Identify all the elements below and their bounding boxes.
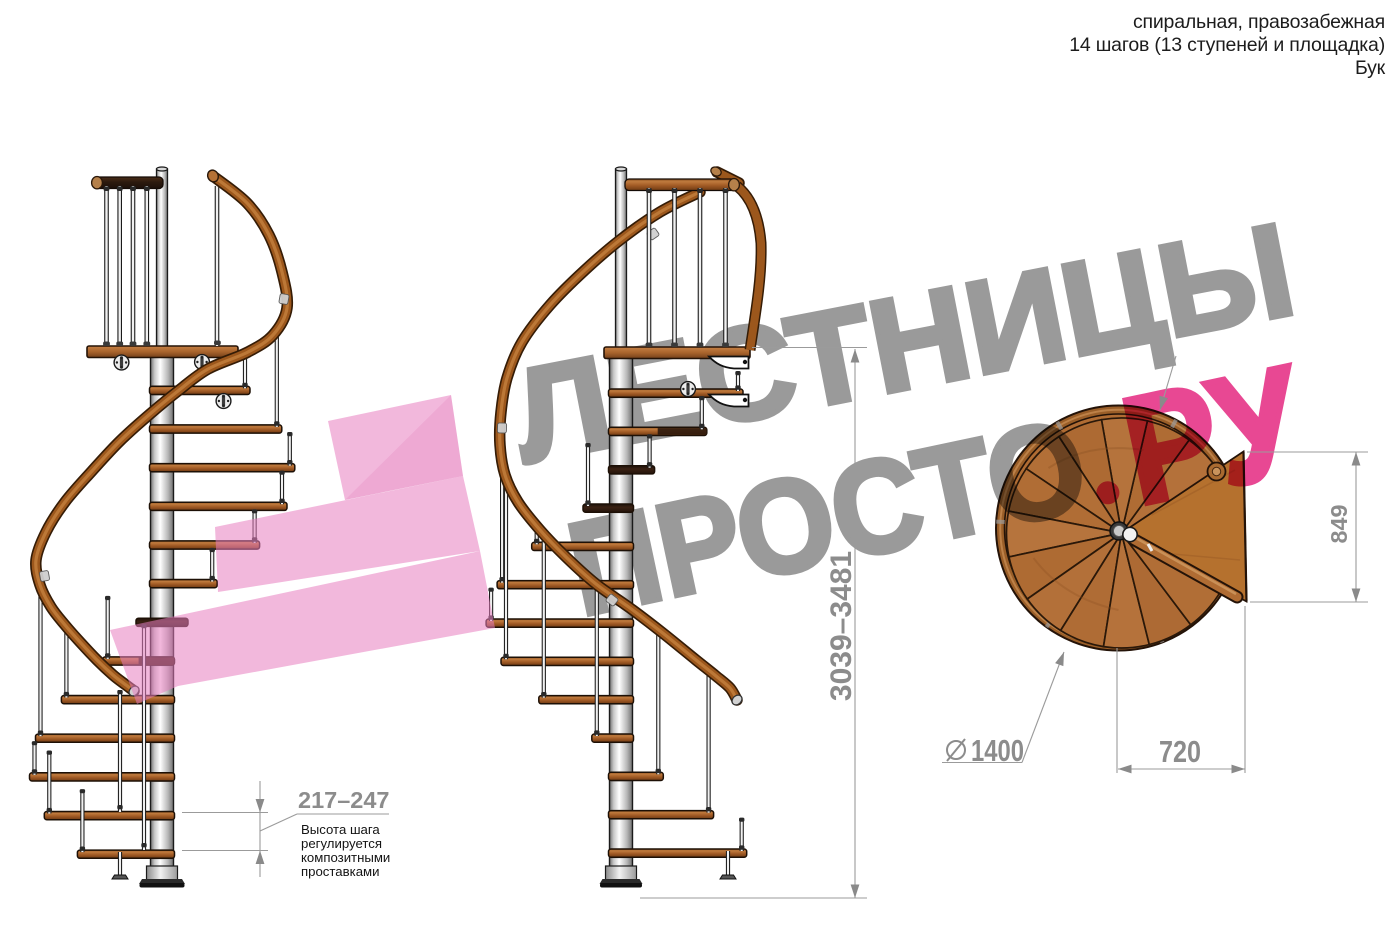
svg-text:14 шагов (13 ступеней и площад: 14 шагов (13 ступеней и площадка) (1069, 34, 1385, 56)
svg-text:регулируется: регулируется (301, 836, 382, 851)
svg-text:Высота шага: Высота шага (301, 822, 380, 837)
svg-text:849: 849 (1326, 505, 1352, 544)
svg-text:композитными: композитными (301, 850, 390, 865)
svg-text:1400: 1400 (971, 733, 1024, 768)
svg-text:217–247: 217–247 (298, 787, 390, 813)
svg-text:Бук: Бук (1355, 57, 1386, 79)
svg-text:проставками: проставками (301, 864, 379, 879)
svg-text:3039–3481: 3039–3481 (825, 551, 858, 701)
svg-text:РУ: РУ (1110, 334, 1318, 537)
svg-text:спиральная, правозабежная: спиральная, правозабежная (1133, 11, 1385, 33)
svg-text:720: 720 (1159, 734, 1201, 769)
